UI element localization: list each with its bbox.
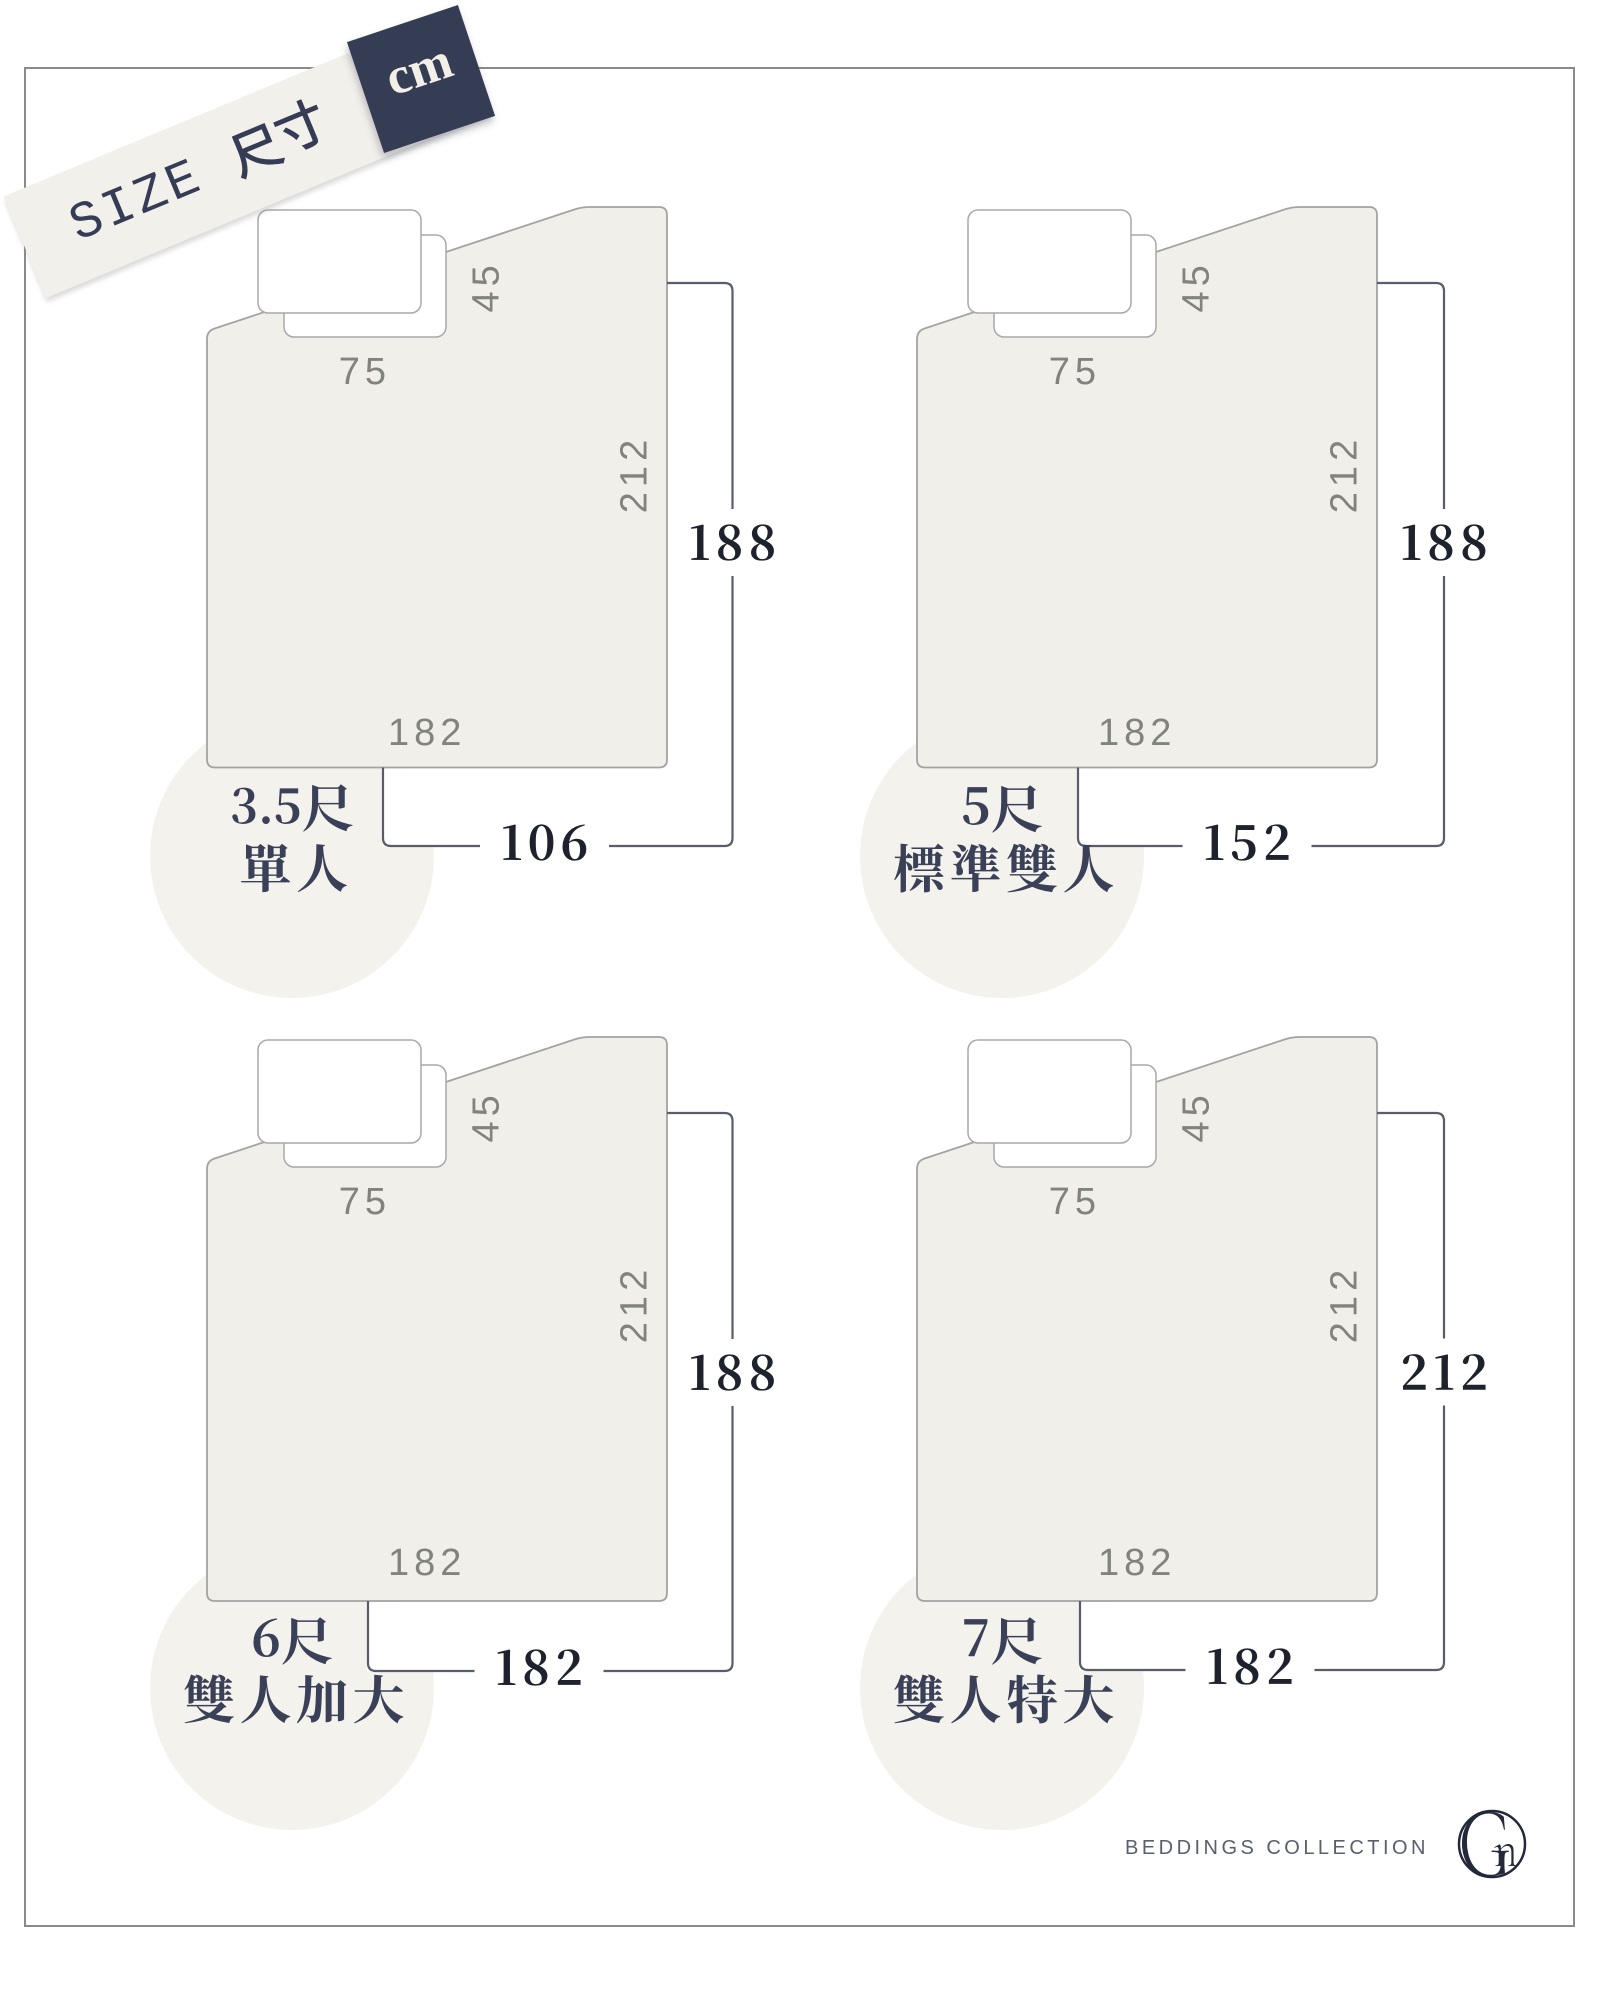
svg-text:75: 75 xyxy=(339,351,391,393)
svg-text:212: 212 xyxy=(614,1265,656,1343)
svg-text:45: 45 xyxy=(1175,260,1217,312)
svg-text:182: 182 xyxy=(388,712,466,754)
svg-text:182: 182 xyxy=(1098,1542,1176,1584)
svg-text:45: 45 xyxy=(465,260,507,312)
svg-text:182: 182 xyxy=(1098,712,1176,754)
svg-text:212: 212 xyxy=(1324,1265,1366,1343)
svg-text:75: 75 xyxy=(339,1181,391,1223)
svg-text:182: 182 xyxy=(388,1542,466,1584)
svg-text:BEDDINGS COLLECTION: BEDDINGS COLLECTION xyxy=(1125,1837,1431,1859)
svg-text:45: 45 xyxy=(1175,1090,1217,1142)
svg-text:75: 75 xyxy=(1049,351,1101,393)
svg-text:75: 75 xyxy=(1049,1181,1101,1223)
svg-text:45: 45 xyxy=(465,1090,507,1142)
svg-text:212: 212 xyxy=(614,435,656,513)
svg-text:212: 212 xyxy=(1324,435,1366,513)
